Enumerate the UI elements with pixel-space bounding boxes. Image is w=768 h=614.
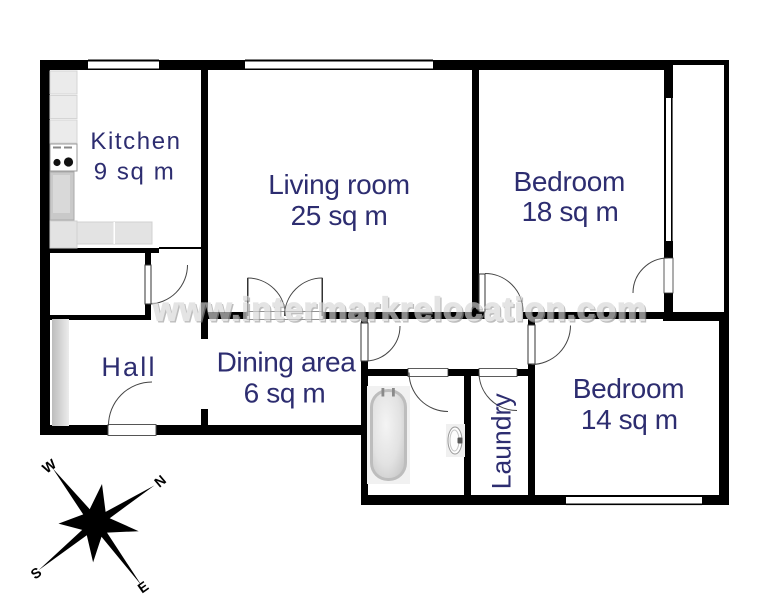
svg-text:14 sq m: 14 sq m <box>581 404 678 435</box>
svg-text:Dining area: Dining area <box>217 346 357 377</box>
svg-text:N: N <box>151 472 169 491</box>
svg-text:25 sq m: 25 sq m <box>291 200 388 231</box>
svg-text:Kitchen: Kitchen <box>90 128 181 155</box>
svg-text:E: E <box>135 578 152 596</box>
svg-text:S: S <box>28 564 45 582</box>
svg-text:6 sq m: 6 sq m <box>244 378 326 409</box>
svg-text:www.intermarkrelocation.com: www.intermarkrelocation.com <box>152 291 647 328</box>
svg-text:Hall: Hall <box>101 352 156 382</box>
svg-text:Living room: Living room <box>268 169 409 200</box>
svg-text:Bedroom: Bedroom <box>514 166 626 197</box>
svg-text:Bedroom: Bedroom <box>573 373 685 404</box>
svg-text:Laundry: Laundry <box>487 393 517 490</box>
svg-text:9 sq m: 9 sq m <box>94 159 176 186</box>
svg-text:18 sq m: 18 sq m <box>522 196 619 227</box>
